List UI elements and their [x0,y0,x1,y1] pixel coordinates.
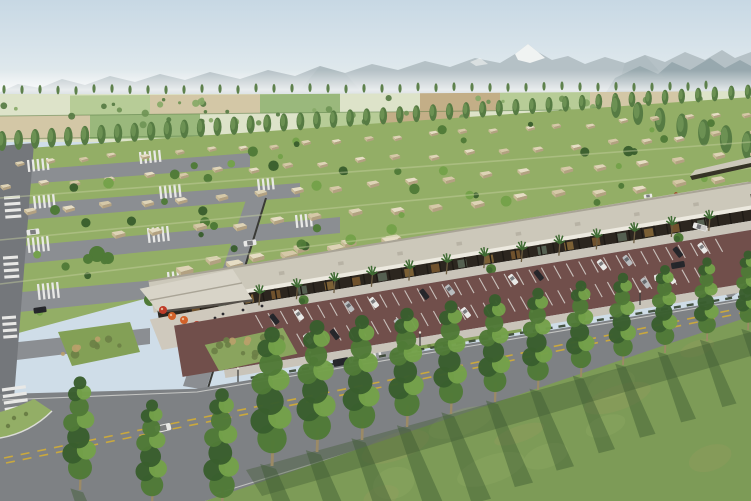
garden-tree [660,135,668,143]
distant-tree [0,102,7,109]
far-poplar [686,82,689,91]
walkway-tree-shade [299,298,305,304]
field-plot [0,115,90,140]
garden-tree [311,181,321,191]
crosswalk-bar [3,336,17,337]
crosswalk-bar [165,185,166,198]
far-poplar [668,82,671,91]
distant-tree [162,98,165,101]
poplar-highlight [231,118,236,130]
far-poplar [20,85,23,94]
crosswalk-bar [33,237,35,252]
crosswalk-bar [2,317,16,318]
distant-tree [140,121,147,128]
poplar-highlight [546,98,550,108]
crosswalk-bar [39,195,40,208]
lit-storefront [377,272,387,281]
garden-tree [707,119,715,127]
distant-tree [192,100,199,107]
distant-tree [404,111,409,116]
tree-crown [489,294,501,306]
poplar-highlight [197,120,202,132]
poplar-highlight [529,99,533,109]
far-poplar [506,83,509,92]
far-poplar [218,84,221,93]
poplar-highlight [247,117,252,129]
poplar-highlight [430,105,434,116]
far-poplar [128,85,131,94]
crosswalk-bar [47,236,49,251]
poplar-highlight [347,111,352,122]
garden-tree [103,178,114,189]
poplar-highlight [48,129,53,142]
shrub [223,337,229,343]
crosswalk-bar [5,210,21,211]
poplar-highlight [297,114,302,126]
tree-crown [74,376,87,389]
crosswalk-bar [301,214,302,227]
crosswalk-bar [179,184,180,197]
distant-tree [112,103,115,106]
palm-frond [521,241,522,250]
far-poplar [542,82,545,91]
lamp-head [639,290,641,292]
street-tree [50,205,60,215]
walkway-tree-shade [674,236,680,242]
shrub [241,351,245,355]
garden-tree [127,216,136,225]
far-poplar [614,82,617,91]
poplar-highlight [563,97,567,107]
distant-tree [117,107,122,112]
palm-frond [446,253,447,262]
poplar-highlight [612,98,618,112]
crosswalk-bar [42,236,44,251]
poplar-highlight [463,103,467,114]
far-poplar [308,83,311,92]
palm-frond [634,222,635,231]
garden-tree [616,163,622,169]
crosswalk-bar [159,150,160,162]
far-poplar [650,82,653,91]
crosswalk-bar [3,330,17,331]
distant-tree [326,106,333,113]
crosswalk-bar [296,215,297,228]
poplar-highlight [181,121,186,133]
crosswalk-bar [5,216,21,217]
garden-tree [33,251,41,259]
palm-frond [259,284,260,293]
far-poplar [578,82,581,91]
poplar-highlight [480,102,484,113]
far-poplar [2,85,5,94]
far-poplar [362,84,365,93]
crosswalk-bar [38,159,39,171]
far-poplar [560,81,563,90]
distant-tree [204,110,208,114]
poplar-highlight [695,89,699,99]
umbrella-top [161,308,163,310]
far-poplar [38,85,41,94]
poplar-highlight [280,115,285,127]
palm-frond [596,228,597,237]
garden-tree [501,196,512,207]
crosswalk-bar [140,152,141,164]
render-canvas: Aerial 3D rendering of a desert master-p… [0,0,751,501]
street-tree [210,222,218,230]
crosswalk-bar [28,160,29,172]
car-window [30,229,36,234]
walkway-tree-shade [487,267,493,273]
crosswalk-bar [28,238,30,253]
garden-tree [198,232,203,237]
far-poplar [470,83,473,92]
palm-frond [559,235,560,244]
shrub [105,336,112,343]
cafe-umbrella [159,306,167,314]
shrub [24,412,28,416]
crosswalk-bar [44,195,45,208]
garden-tree [268,160,279,171]
person [242,309,245,312]
garden-tree [461,137,467,143]
far-poplar [632,83,635,92]
poplar-highlight [15,131,20,144]
garden-tree [313,224,321,232]
poplar-highlight [148,123,153,135]
far-poplar [236,85,239,94]
far-poplar [290,84,293,93]
tree-crown [355,315,369,329]
shrub [6,424,10,428]
palm-frond [409,260,410,269]
shrub [216,342,223,349]
far-poplar [200,84,203,93]
poplar-highlight [729,87,733,96]
distant-tree [14,107,18,111]
poplar-highlight [596,95,600,105]
poplar-highlight [264,116,269,128]
tree-crown [215,388,229,402]
far-poplar [182,85,185,94]
palm-frond [371,266,372,275]
shrub [94,344,100,350]
garden-tree [248,146,258,156]
palm-frond [296,278,297,287]
distant-tree [475,96,481,102]
shrub [12,416,16,420]
crosswalk-bar [167,226,169,241]
poplar-highlight [413,106,417,117]
distant-tree [501,100,504,103]
garden-tree [198,206,207,215]
poplar-highlight [699,121,706,138]
far-poplar [524,83,527,92]
garden-tree [528,122,533,127]
crosswalk-bar [263,178,264,190]
shrub [244,339,250,345]
palm-frond [334,272,335,281]
person [261,305,264,308]
poplar-highlight [114,125,119,137]
far-poplar [380,84,383,93]
tree-crown [400,308,413,321]
garden-tree [191,162,198,169]
poplar-highlight [330,112,335,123]
far-poplar [704,81,707,90]
tree-crown [660,265,670,275]
distant-tree [209,118,213,122]
palm-frond [671,216,672,225]
distant-tree [276,112,280,116]
poplar-highlight [677,115,684,132]
lamp-head [237,367,239,369]
crosswalk-bar [170,185,171,198]
poplar-highlight [397,108,401,119]
street-tree [83,254,93,264]
far-poplar [326,84,329,93]
garden-tree [61,262,69,270]
garden-tree [399,212,405,218]
poplar-highlight [496,101,500,112]
far-poplar [434,83,437,92]
tree-crown [702,257,711,266]
shrub [95,336,101,342]
far-poplar [146,85,149,94]
crosswalk-bar [160,186,161,199]
car-window [247,240,253,245]
crosswalk-bar [174,184,175,197]
distant-tree [312,108,316,112]
lit-storefront [644,228,654,237]
poplar-highlight [721,127,728,145]
shrub [117,343,121,347]
tree-crown [532,288,544,300]
poplar-highlight [98,126,103,139]
palm-frond [484,247,485,256]
crosswalk-bar [33,159,34,171]
crosswalk-bar [272,177,273,189]
poplar-highlight [662,91,666,101]
car-window [37,307,43,312]
far-poplar [596,83,599,92]
poplar-highlight [164,122,169,134]
umbrella-top [182,318,184,320]
shrub [211,348,218,355]
far-poplar [164,85,167,94]
car-window [646,194,650,197]
poplar-highlight [646,92,650,102]
far-poplar [254,83,257,92]
distant-tree [256,120,261,125]
cafe-umbrella [168,312,176,320]
crosswalk-bar [258,179,259,191]
crosswalk-bar [4,203,20,204]
garden-tree [618,183,624,189]
crosswalk-bar [162,226,164,241]
distant-tree [101,103,107,109]
poplar-highlight [679,90,683,100]
poplar-highlight [131,124,136,136]
tree-crown [310,320,325,335]
garden-tree [278,154,283,159]
far-poplar [56,86,59,95]
crosswalk-bar [4,270,19,271]
poplar-highlight [31,130,36,143]
far-poplar [452,82,455,91]
far-poplar [272,84,275,93]
garden-tree [439,166,448,175]
field-plot [0,96,70,117]
poplar-highlight [634,104,640,119]
umbrella-top [170,314,172,316]
crosswalk-bar [53,194,54,207]
field-plot [70,95,150,116]
shrub [76,345,82,351]
garden-tree [594,199,601,206]
far-poplar [74,86,77,95]
crosswalk-bar [154,150,155,162]
poplar-highlight [214,119,219,131]
garden-tree [227,160,235,168]
far-poplar [110,84,113,93]
cafe-umbrella [180,316,188,324]
poplar-highlight [380,109,384,120]
crosswalk-bar [4,276,19,277]
distant-tree [142,110,149,117]
poplar-highlight [314,113,319,124]
poplar-highlight [363,110,367,121]
garden-tree [649,127,654,132]
poplar-highlight [745,86,749,95]
crosswalk-bar [268,178,269,190]
tree-crown [445,300,458,313]
distant-tree [225,110,229,114]
poplar-highlight [65,128,70,141]
tree-crown [576,280,587,291]
tree-crown [618,273,628,283]
distant-tree [486,100,490,104]
poplar-highlight [81,127,86,140]
garden-tree [294,141,300,147]
crosswalk-bar [48,194,49,207]
tree-crown [264,327,280,343]
garden-tree [438,125,447,134]
far-poplar [92,84,95,93]
poplar-highlight [629,93,633,103]
garden-tree [170,169,180,179]
distant-tree [157,101,163,107]
lit-storefront [617,232,627,241]
garden-tree [204,174,213,183]
far-poplar [398,84,401,93]
person [222,313,225,316]
aerial-render: Aerial 3D rendering of a desert master-p… [0,0,751,501]
crosswalk-bar [42,158,43,170]
garden-tree [386,224,396,234]
garden-tree [345,234,356,245]
distant-tree [386,95,392,101]
distant-tree [68,113,75,120]
crosswalk-bar [34,196,35,209]
shrub [61,352,65,356]
poplar-highlight [579,96,583,106]
tree-crown [146,400,158,412]
palm-frond [709,210,710,219]
far-poplar [416,82,419,91]
garden-tree [69,183,78,192]
crosswalk-bar [3,263,18,264]
garden-tree [161,198,168,205]
garden-tree [81,218,90,227]
crosswalk-bar [306,214,307,227]
poplar-highlight [712,88,716,98]
lamp-head [419,331,421,333]
garden-tree [231,245,238,252]
poplar-highlight [513,100,517,110]
crosswalk-bar [3,257,18,258]
garden-tree [101,257,109,265]
distant-tree [178,101,181,104]
far-poplar [344,85,347,94]
crosswalk-bar [38,237,40,252]
garden-tree [409,184,419,194]
crosswalk-bar [2,323,16,324]
poplar-highlight [446,104,450,115]
far-poplar [488,83,491,92]
